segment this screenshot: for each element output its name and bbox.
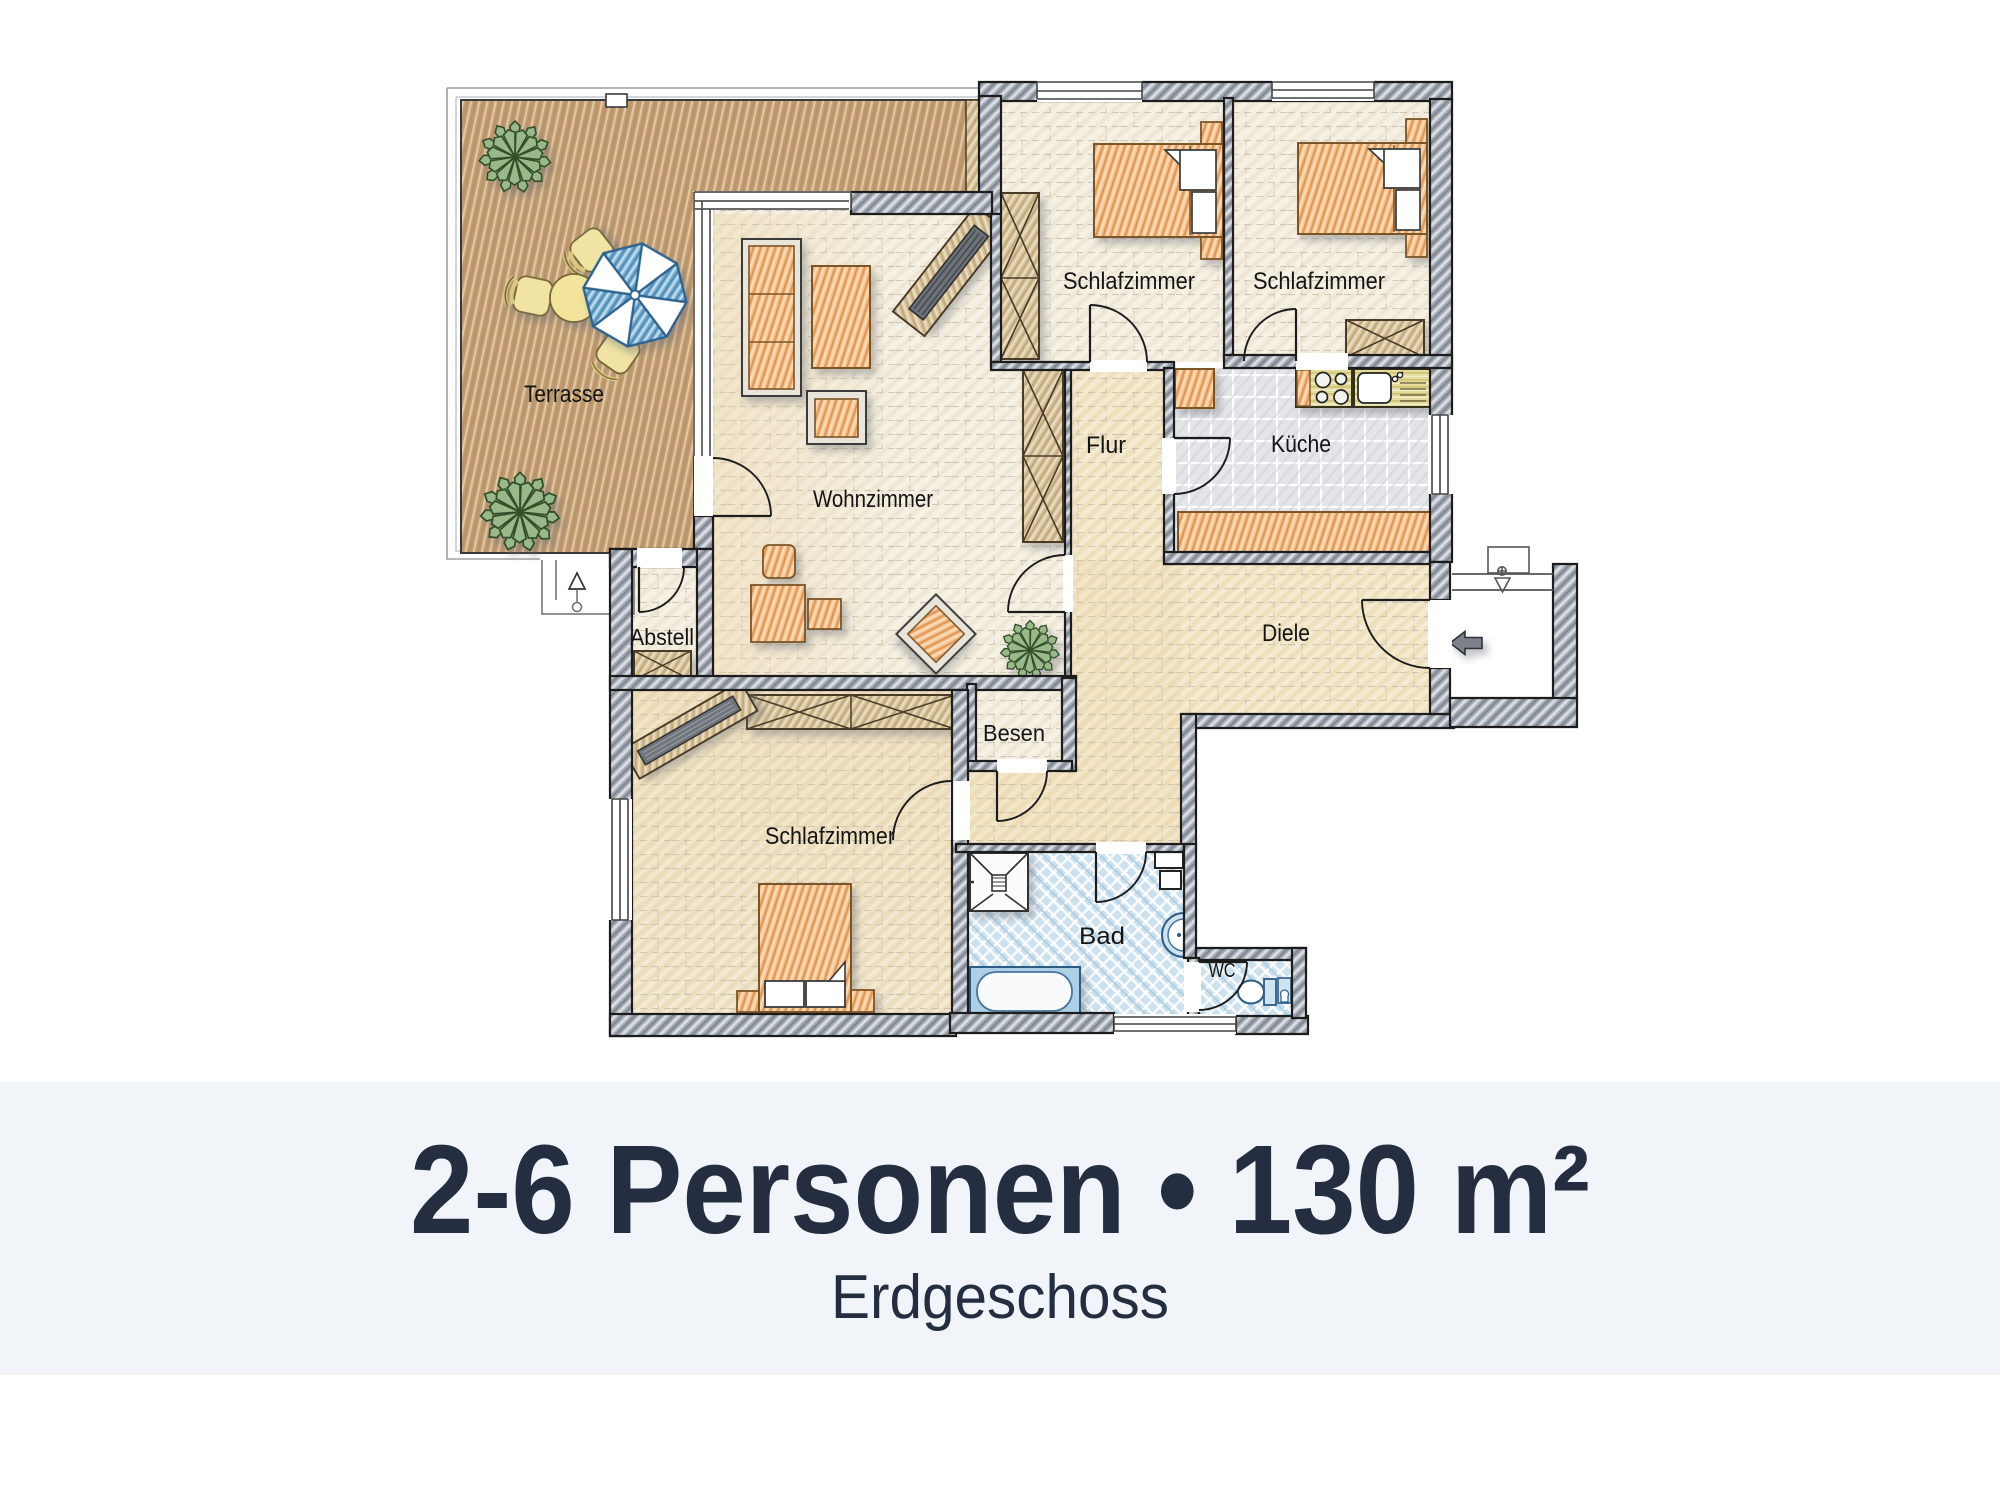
- svg-text:Erdgeschoss: Erdgeschoss: [831, 1263, 1169, 1332]
- svg-text:Schlafzimmer: Schlafzimmer: [1063, 268, 1195, 295]
- svg-text:Besen: Besen: [983, 720, 1045, 746]
- svg-text:Abstell: Abstell: [630, 624, 694, 650]
- svg-text:Diele: Diele: [1262, 620, 1310, 647]
- svg-text:2-6 Personen • 130 m²: 2-6 Personen • 130 m²: [410, 1119, 1590, 1260]
- svg-text:Schlafzimmer: Schlafzimmer: [765, 823, 895, 850]
- svg-text:Wohnzimmer: Wohnzimmer: [813, 486, 933, 513]
- svg-text:Küche: Küche: [1271, 431, 1331, 458]
- svg-text:Flur: Flur: [1086, 432, 1126, 459]
- svg-text:WC: WC: [1209, 960, 1236, 982]
- svg-text:Bad: Bad: [1079, 923, 1125, 950]
- svg-text:Terrasse: Terrasse: [524, 381, 604, 408]
- svg-text:Schlafzimmer: Schlafzimmer: [1253, 268, 1385, 295]
